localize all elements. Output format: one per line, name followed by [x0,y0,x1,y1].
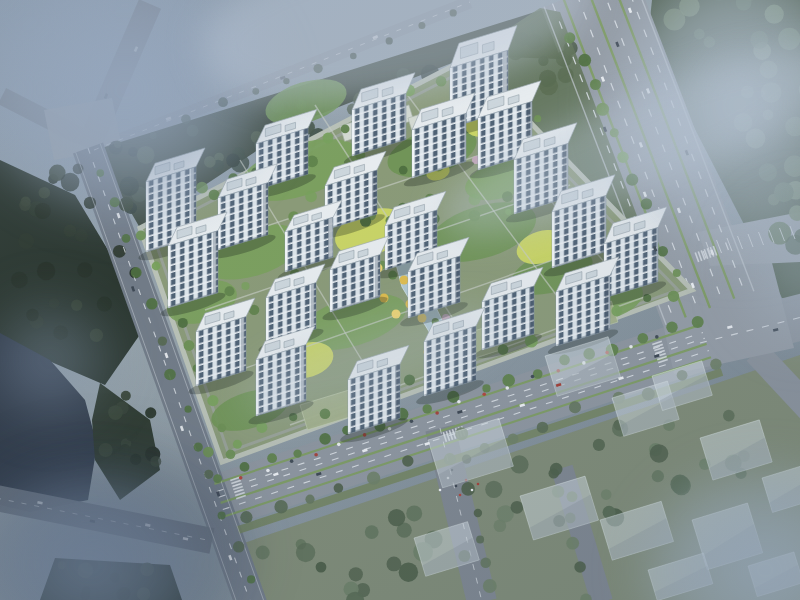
road-a-tree [483,579,497,593]
tower-facade-shade [529,286,534,336]
forest-tree [760,61,778,79]
tower-facade-highlight [146,181,148,252]
courtyard-tree [469,210,480,221]
forest-tree [49,298,60,309]
north-road-tree [252,88,259,95]
forest-tree [761,82,782,103]
forest-tree [19,199,31,211]
boulevard-street-tree [533,369,543,379]
ghost-zone-tree [256,546,270,560]
west-road-tree [185,406,192,413]
tower-facade-shade [263,183,268,237]
shopfront-parked-car [655,335,659,339]
tower-facade-shade [241,317,246,373]
forest-tree [226,153,240,167]
forest-tree [187,125,199,137]
forest-tree [110,573,120,583]
boulevard-verge-tree [508,434,519,445]
west-road-tree [110,197,120,207]
tower-facade-highlight [196,331,198,386]
plaza-person [455,485,458,488]
west-road-tree [158,336,167,345]
forest-tree [734,113,753,132]
west-road-tree [194,443,203,452]
forest-tree [746,129,766,149]
shopfront-parked-car [290,459,294,463]
boulevard-street-tree [638,333,649,344]
ghost-zone-tree [296,543,315,562]
boulevard-verge-tree [710,359,721,370]
ghost-zone-tree [593,439,605,451]
shopfront-parked-car [337,443,341,447]
north-road-tree [314,64,323,73]
forest-tree [61,173,80,192]
boulevard-street-tree [267,453,277,463]
golden-tree [392,310,401,319]
tower-facade-highlight [408,271,410,318]
plaza-person [471,489,474,492]
north-road-tree [150,132,157,139]
edge-tree [404,374,415,385]
north-road-tree [114,141,121,148]
forest-tree [120,444,131,455]
tower-facade-shade [372,170,377,216]
forest-tree [77,262,92,277]
shopfront-parked-car [266,469,270,473]
edge-tree [436,76,447,87]
forest-tree [121,391,131,401]
courtyard-tree [305,191,317,203]
north-road-tree [386,37,393,44]
north-road-tree [450,9,457,16]
tower-facade-highlight [514,159,516,214]
boulevard-street-tree [240,462,250,472]
tower-facade-highlight [285,231,287,272]
forest-tree [119,197,134,212]
edge-tree [203,447,214,458]
forest-tree [26,309,38,321]
shopfront-parked-car [435,411,439,415]
highway-verge-tree [641,198,652,209]
boulevard-street-tree [482,384,490,392]
boulevard-verge-tree [305,495,314,504]
boulevard-street-tree [423,404,432,413]
forest-tree [750,31,768,49]
edge-tree [218,424,227,433]
courtyard-tree [505,209,511,215]
tower-facade-highlight [266,297,268,344]
edge-tree [668,291,679,302]
tower-facade-shade [301,345,306,403]
forest-tree [11,272,28,289]
forest-tree [53,325,68,340]
tower-facade-highlight [348,379,350,434]
boulevard-verge-tree [274,500,287,513]
road-a-tree [474,509,482,517]
tower-facade-highlight [256,359,258,416]
tower-facade-highlight [552,211,554,268]
highway-verge-tree [657,246,668,257]
ghost-zone-tree [650,444,669,463]
forest-tree [150,456,161,467]
boulevard-street-tree [502,374,515,387]
road-b-tree [574,561,586,573]
north-road-tree [283,78,289,84]
edge-tree [136,230,146,240]
tower-facade-shade [455,256,460,304]
tower-facade-highlight [330,269,332,312]
north-road-tree [418,22,425,29]
ghost-zone-tree [365,525,379,539]
plaza-person [477,483,480,486]
boulevard-street-tree [319,433,331,445]
tower-facade-highlight [168,245,170,308]
road-a-tree [476,535,484,543]
edge-tree [323,133,334,144]
ghost-zone-tree [316,562,327,573]
road-a-tree [480,558,491,569]
edge-tree [341,124,350,133]
forest-tree [120,176,139,195]
west-road-tree [247,575,255,583]
forest-tree [119,572,131,584]
west-road-tree [97,169,105,177]
ghost-zone-tree [406,505,422,521]
ghost-zone-tree [387,557,402,572]
forest-tree [108,405,123,420]
forest-tree [741,86,754,99]
tower-facade-highlight [385,225,387,270]
north-road-tree [181,114,191,124]
shopfront-parked-car [314,453,318,457]
forest-tree [99,443,113,457]
forest-tree [126,430,138,442]
boulevard-verge-tree [240,511,252,523]
forest-tree [130,454,141,465]
west-road-tree [233,541,245,553]
ghost-zone-tree [485,481,502,498]
edge-tree [207,395,218,406]
courtyard-tree [534,115,541,122]
tower-facade-shade [395,364,400,420]
road-a-tree [461,482,475,496]
forest-tree [759,163,777,181]
forest-tree [140,563,154,577]
forest-tree [119,587,131,599]
highway-verge-tree [596,103,609,116]
tower-facade-shade [213,231,218,295]
highway-verge-tree [610,128,619,137]
tower-facade-shade [471,326,476,382]
forest-tree [145,407,156,418]
forest-tree [694,29,705,40]
forest-tree [37,262,55,280]
boulevard-verge-tree [402,455,413,466]
west-road-tree [164,369,176,381]
west-road-tree [204,470,213,479]
ghost-zone-tree [652,470,664,482]
plaza-person [439,489,442,492]
shopfront-parked-car [505,386,509,390]
courtyard-tree [196,182,208,194]
plaza-person [459,494,462,497]
highway-verge-tree [626,174,638,186]
shopfront-parked-car [410,419,414,423]
edge-tree [233,440,242,449]
boulevard-street-tree [692,316,704,328]
courtyard-tree [502,191,513,202]
ghost-zone-tree [511,501,524,514]
edge-tree [184,340,195,351]
highway-verge-tree [564,32,575,43]
forest-tree [204,156,216,168]
ghost-zone-tree [670,475,689,494]
edge-tree [152,262,161,271]
shopfront-parked-car [457,400,461,404]
boulevard-verge-tree [367,472,380,485]
courtyard-tree [225,286,235,296]
boulevard-street-tree [666,322,677,333]
ghost-zone-tree [399,563,418,582]
forest-tree [71,300,82,311]
forest-tree [64,224,77,237]
highway-verge-tree [673,269,681,277]
ghost-zone-tree [388,509,405,526]
west-road-tree [131,267,142,278]
tower-facade-highlight [412,129,414,178]
edge-tree [178,318,188,328]
tower-facade-shade [375,255,380,299]
edge-tree [226,450,236,460]
boulevard-verge-tree [569,401,581,413]
tower-facade-shade [605,275,610,331]
forest-tree [137,146,155,164]
tower-facade-highlight [478,117,480,170]
shopfront-parked-car [482,392,486,396]
ghost-zone-tree [601,489,612,500]
ghost-zone-tree [723,410,735,422]
tower-facade-highlight [352,109,354,156]
ghost-zone-tree [349,567,363,581]
highway-verge-tree [578,54,591,67]
boulevard-verge-tree [537,422,548,433]
forest-tree [35,203,51,219]
boulevard-street-tree [293,449,301,457]
highway-verge-tree [617,152,628,163]
boulevard-street-tree [213,474,222,483]
forest-tree [765,5,784,24]
boulevard-verge-tree [334,483,344,493]
highway-verge-tree [590,79,601,90]
edge-tree [320,408,331,419]
forest-tree [58,561,66,569]
shopfront-parked-car [629,345,633,349]
tower-facade-shade [461,113,466,163]
forest-tree [39,187,51,199]
road-b-tree [566,537,579,550]
west-road-tree [218,512,226,520]
tower-facade-shade [401,93,406,141]
golden-tree [400,276,409,285]
north-road-tree [218,97,228,107]
forest-tree [763,110,774,121]
edge-tree [611,306,622,317]
shopfront-parked-car [239,476,243,480]
courtyard-tree [399,166,408,175]
forest-tree [774,182,794,202]
tower-facade-shade [303,128,308,176]
north-road-tree [350,53,357,60]
forest-tree [78,563,94,579]
tower-facade-shade [328,217,333,259]
west-road-tree [146,298,158,310]
ghost-zone-tree [550,463,563,476]
forest-tree [704,36,716,48]
forest-tree [97,297,112,312]
tower-facade-shade [311,283,316,331]
forest-tree [82,586,90,594]
courtyard-tree [241,282,249,290]
west-road-tree [122,234,131,243]
shopfront-parked-car [531,375,535,379]
scene-canvas [0,0,800,600]
tower-facade-shade [653,227,658,283]
forest-tree [90,329,103,342]
aerial-rendering [0,0,800,600]
courtyard-tree [469,194,481,206]
forest-tree [128,147,138,157]
forest-tree [778,28,800,50]
tower-facade-highlight [556,291,558,346]
forest-tree [75,229,88,242]
forest-tree [18,233,34,249]
forest-tree [137,587,150,600]
tower-facade-highlight [424,341,426,396]
